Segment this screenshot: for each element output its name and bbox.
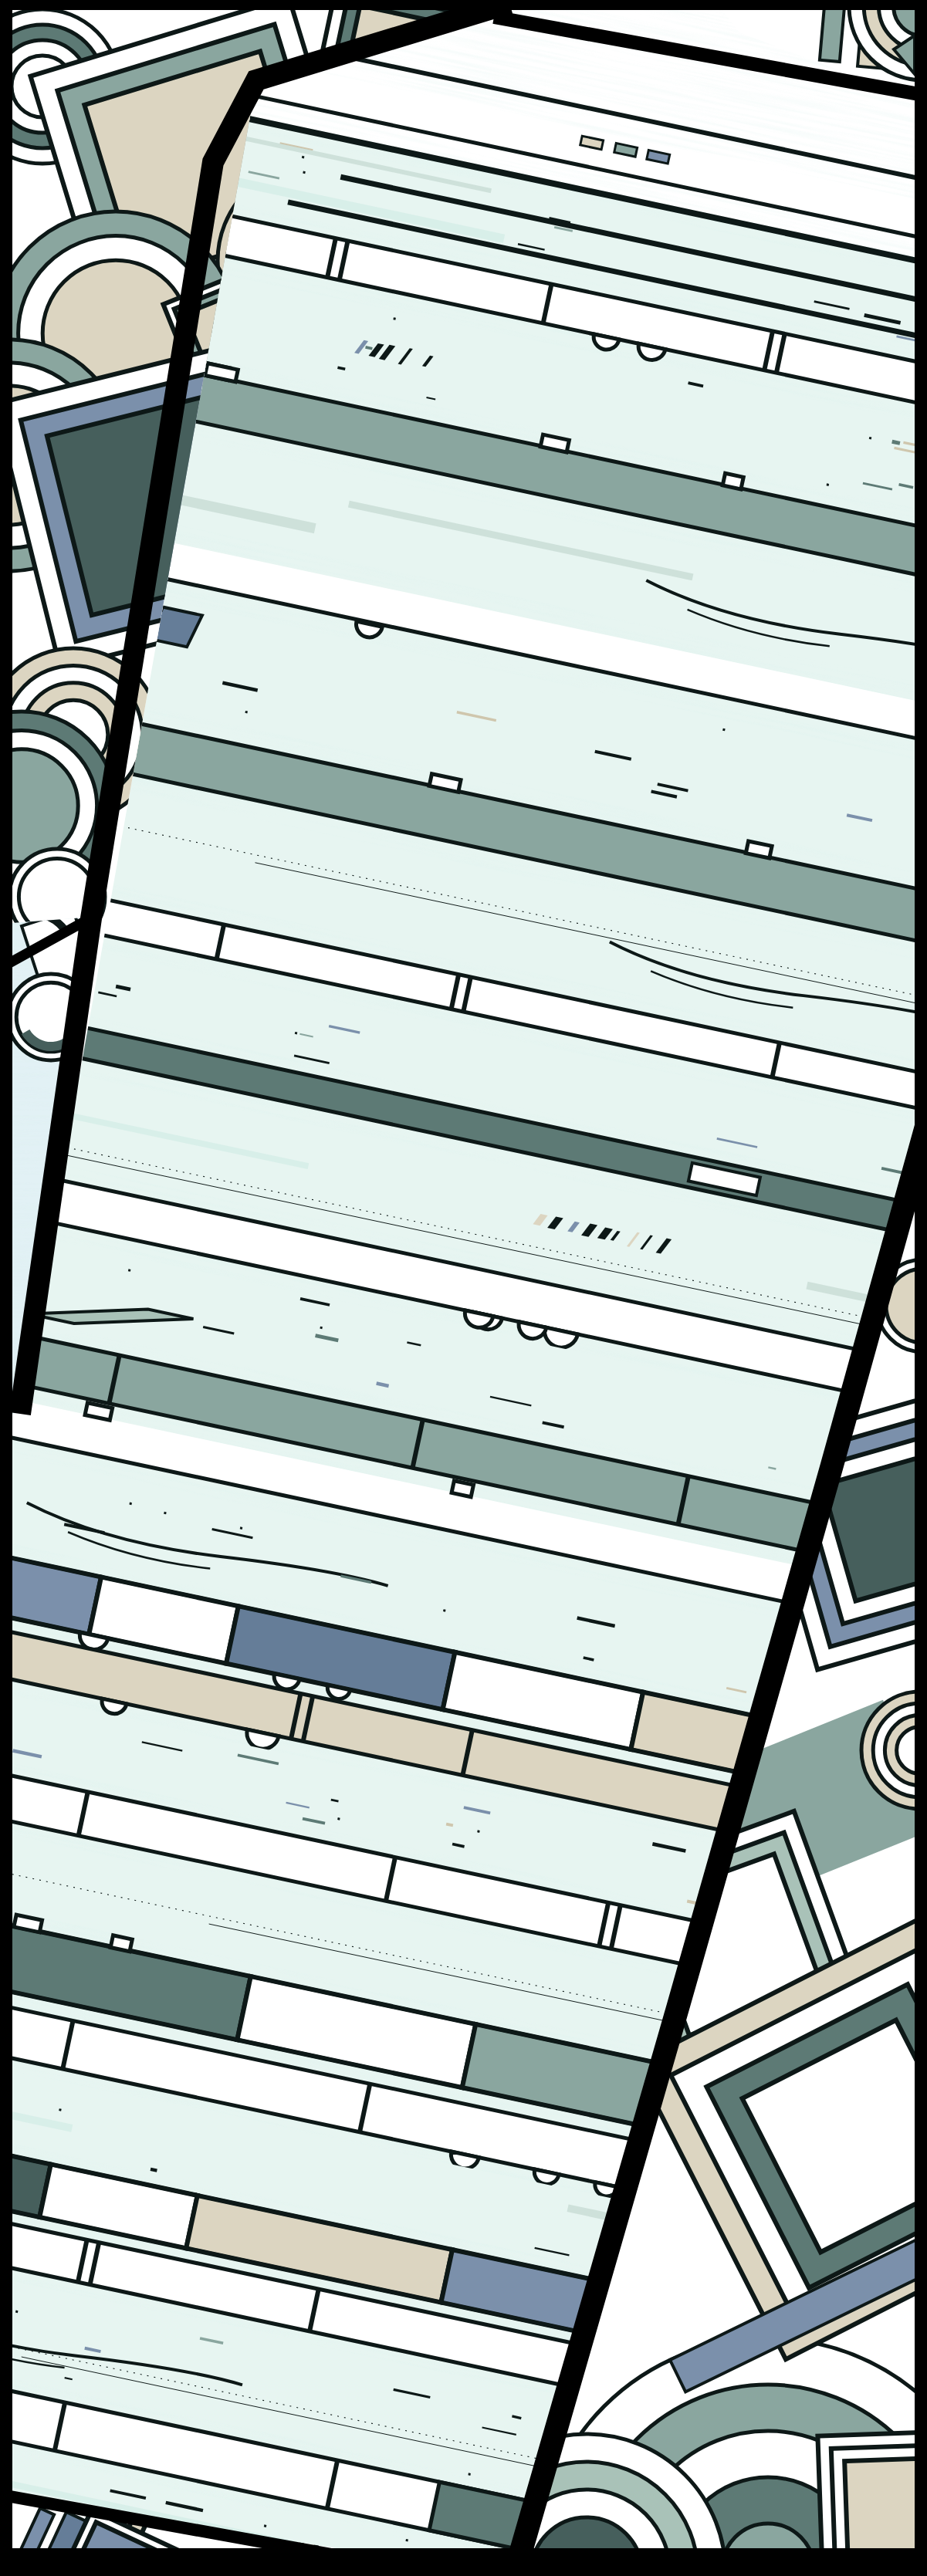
abstract-collage <box>0 0 927 2576</box>
artwork-page <box>0 0 927 2576</box>
